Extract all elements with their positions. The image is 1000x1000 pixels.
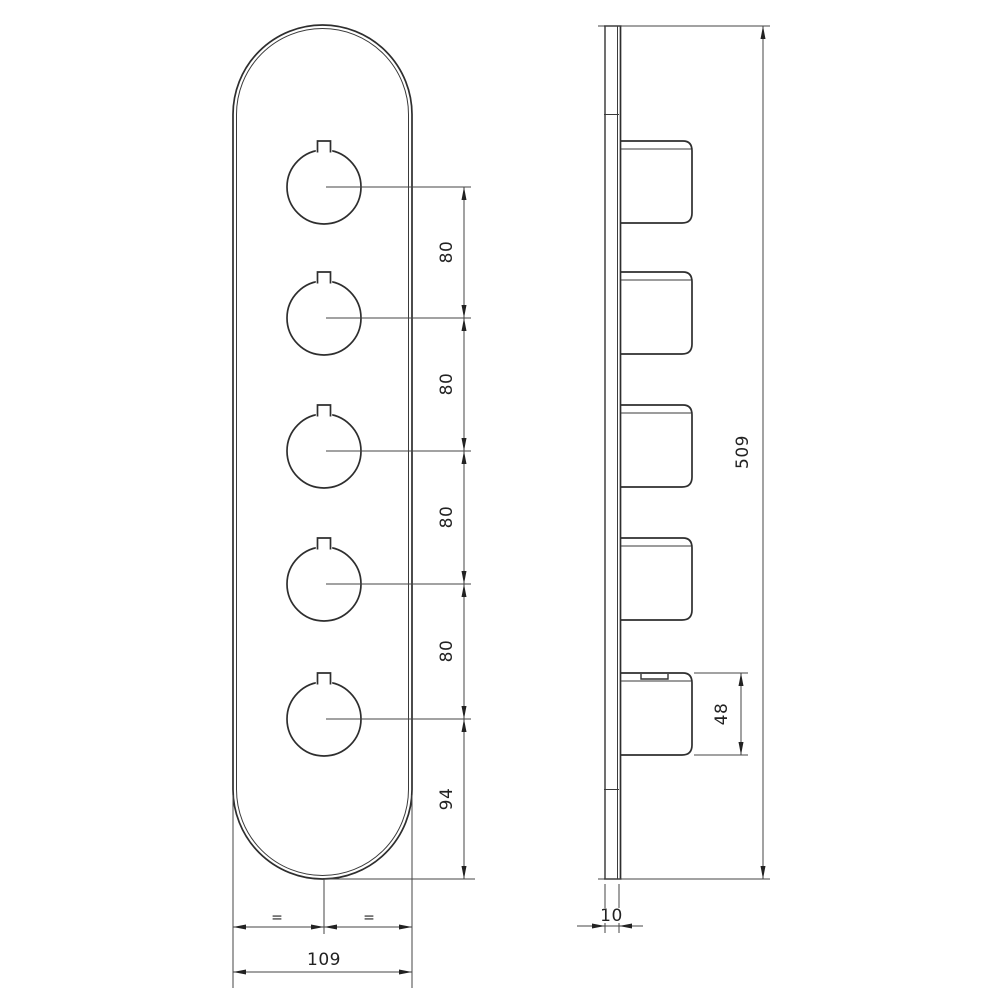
knob-side-4 bbox=[621, 538, 692, 620]
thickness-dimension: 10 bbox=[577, 884, 643, 933]
technical-drawing: 80 80 80 80 94 = = 109 bbox=[0, 0, 1000, 1000]
side-height-dimension: 509 bbox=[598, 26, 770, 879]
knob-front-3 bbox=[287, 403, 471, 488]
plate-outline-outer bbox=[233, 25, 412, 879]
knob-front-2 bbox=[287, 270, 471, 355]
dim-knob-spacing-4: 80 bbox=[437, 640, 457, 663]
drawing-sheet: 80 80 80 80 94 = = 109 bbox=[0, 0, 1000, 1000]
front-vertical-dimensions: 80 80 80 80 94 bbox=[324, 187, 475, 879]
knob-front-5 bbox=[287, 671, 471, 756]
dim-plate-height: 509 bbox=[733, 435, 753, 469]
side-view bbox=[604, 26, 692, 879]
dim-plate-thickness: 10 bbox=[600, 906, 623, 926]
front-view bbox=[233, 25, 471, 879]
plate-outline-inner bbox=[237, 29, 409, 876]
dim-knob-height: 48 bbox=[712, 703, 732, 726]
dim-equal-right: = bbox=[363, 910, 375, 926]
knob-side-2 bbox=[621, 272, 692, 354]
front-width-dimensions: = = 109 bbox=[233, 795, 412, 988]
dim-knob-spacing-3: 80 bbox=[437, 506, 457, 529]
knob-height-dimension: 48 bbox=[694, 673, 748, 755]
knob-side-5 bbox=[621, 673, 692, 755]
knob-side-3 bbox=[621, 405, 692, 487]
knob-front-4 bbox=[287, 536, 471, 621]
dim-equal-left: = bbox=[271, 910, 283, 926]
dim-knob-spacing-1: 80 bbox=[437, 241, 457, 264]
dim-bottom-offset: 94 bbox=[437, 788, 457, 811]
knob-side-1 bbox=[621, 141, 692, 223]
knob-tab-notch bbox=[641, 674, 668, 679]
knob-front-1 bbox=[287, 139, 471, 224]
dim-plate-width: 109 bbox=[307, 950, 341, 970]
dim-knob-spacing-2: 80 bbox=[437, 373, 457, 396]
